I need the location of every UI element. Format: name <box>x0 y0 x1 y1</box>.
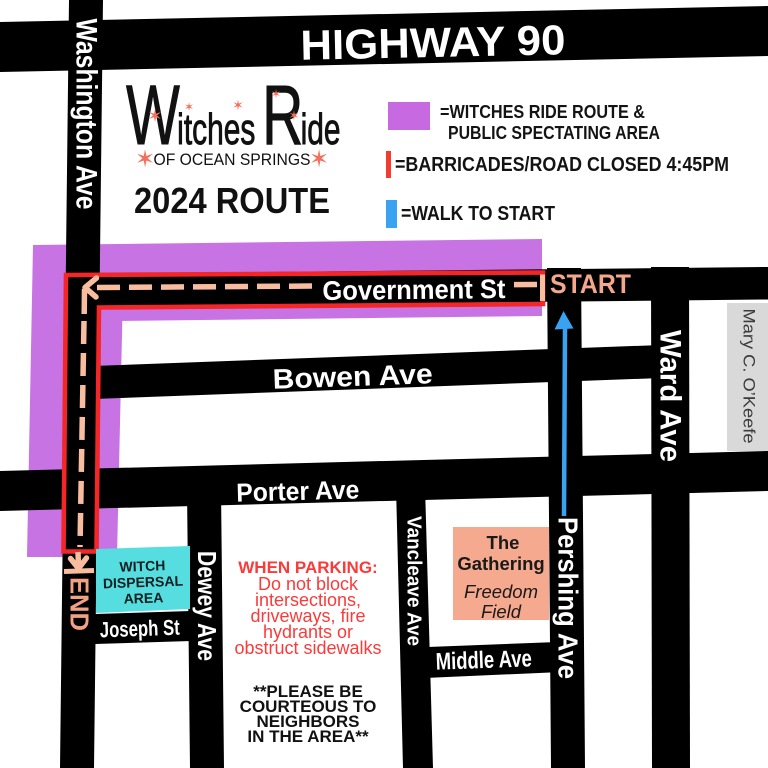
svg-text:=BARRICADES/ROAD CLOSED 4:45PM: =BARRICADES/ROAD CLOSED 4:45PM <box>395 154 729 176</box>
svg-text:Gathering: Gathering <box>457 553 544 574</box>
svg-text:OF OCEAN SPRINGS: OF OCEAN SPRINGS <box>154 150 311 169</box>
svg-text:✶: ✶ <box>232 97 244 113</box>
svg-text:Porter Ave: Porter Ave <box>236 474 360 507</box>
svg-text:Government St: Government St <box>322 274 505 306</box>
svg-text:=WALK TO START: =WALK TO START <box>401 203 555 225</box>
svg-text:✶: ✶ <box>289 108 300 123</box>
svg-text:Freedom: Freedom <box>464 581 538 602</box>
svg-text:obstruct sidewalks: obstruct sidewalks <box>234 638 381 658</box>
svg-text:END: END <box>65 577 95 631</box>
svg-text:Mary C. O’Keefe: Mary C. O’Keefe <box>740 309 759 444</box>
svg-text:✶: ✶ <box>271 87 281 101</box>
svg-text:✶: ✶ <box>147 106 162 126</box>
svg-text:✶: ✶ <box>135 146 155 173</box>
svg-text:IN THE AREA**: IN THE AREA** <box>247 727 369 746</box>
svg-text:✶: ✶ <box>309 146 329 173</box>
svg-text:DISPERSAL: DISPERSAL <box>103 573 184 592</box>
svg-text:The: The <box>487 532 520 553</box>
svg-text:Ward Ave: Ward Ave <box>654 330 687 462</box>
svg-text:Bowen Ave: Bowen Ave <box>272 358 433 395</box>
svg-text:Joseph St: Joseph St <box>99 615 180 643</box>
svg-text:AREA: AREA <box>123 589 163 606</box>
svg-text:Washington Ave: Washington Ave <box>70 19 103 210</box>
svg-text:HIGHWAY 90: HIGHWAY 90 <box>300 16 566 69</box>
svg-text:START: START <box>550 269 631 299</box>
svg-text:Field: Field <box>481 601 522 622</box>
svg-text:2024 ROUTE: 2024 ROUTE <box>134 180 330 221</box>
svg-text:Dewey Ave: Dewey Ave <box>192 551 222 661</box>
svg-text:PUBLIC SPECTATING AREA: PUBLIC SPECTATING AREA <box>448 123 660 143</box>
svg-text:WITCH: WITCH <box>119 557 165 575</box>
svg-text:✶: ✶ <box>184 100 194 114</box>
svg-text:=WITCHES RIDE ROUTE &: =WITCHES RIDE ROUTE & <box>440 102 645 122</box>
svg-text:Vancleave Ave: Vancleave Ave <box>403 516 425 646</box>
svg-text:Middle Ave: Middle Ave <box>435 645 532 675</box>
svg-text:Pershing Ave: Pershing Ave <box>552 517 583 679</box>
